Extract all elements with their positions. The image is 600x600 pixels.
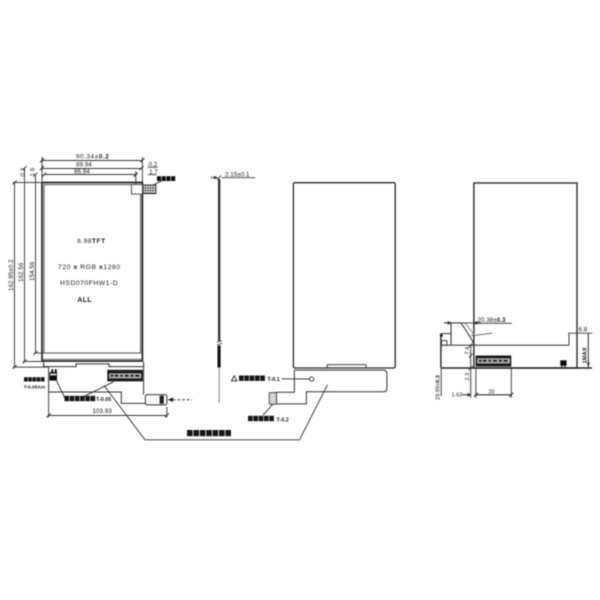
svg-text:ALL: ALL (77, 297, 92, 304)
svg-text:154.56: 154.56 (29, 261, 36, 281)
svg-text:7.4: 7.4 (465, 347, 471, 355)
svg-text:162.56: 162.56 (18, 262, 25, 282)
svg-text:6.98TFT: 6.98TFT (77, 238, 105, 245)
svg-text:90.34±0.2: 90.34±0.2 (76, 154, 109, 161)
svg-text:1MAX: 1MAX (583, 347, 589, 363)
svg-text:103.93: 103.93 (93, 408, 113, 415)
svg-text:29.99±0.3: 29.99±0.3 (435, 375, 441, 400)
svg-text:86.94: 86.94 (74, 169, 90, 176)
svg-text:162.95±0.2: 162.95±0.2 (8, 259, 15, 291)
svg-text:720 x RGB x1280: 720 x RGB x1280 (58, 264, 121, 271)
svg-text:6.8: 6.8 (579, 326, 588, 333)
svg-text:HSD070FHW1-D: HSD070FHW1-D (60, 280, 118, 287)
svg-text:T-0.2: T-0.2 (277, 417, 289, 423)
svg-text:2.15±0.1: 2.15±0.1 (225, 171, 250, 178)
svg-text:1.62: 1.62 (452, 392, 463, 398)
svg-text:20.38±0.3: 20.38±0.3 (478, 317, 506, 324)
svg-text:1.6: 1.6 (30, 167, 37, 176)
svg-text:T-0.05Am: T-0.05Am (24, 385, 45, 391)
svg-text:0.2: 0.2 (20, 167, 27, 176)
svg-text:T-0.1: T-0.1 (268, 377, 280, 383)
svg-text:20: 20 (489, 389, 495, 395)
svg-text:2.3: 2.3 (465, 373, 471, 381)
svg-text:T-0.05: T-0.05 (96, 397, 111, 403)
